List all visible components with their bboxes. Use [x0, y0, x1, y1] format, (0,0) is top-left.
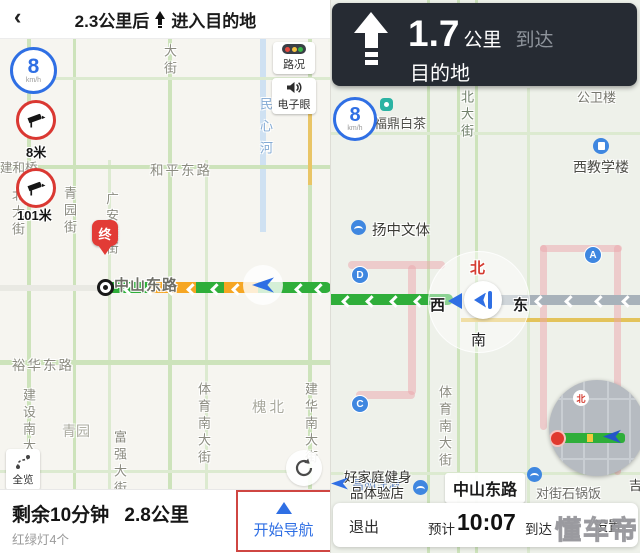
vehicle-glyph-arrow: [474, 293, 486, 308]
district-label: 青园: [62, 421, 90, 441]
metro-line: [540, 245, 547, 430]
station-letter: D: [356, 270, 363, 281]
current-road-pill: 中山东路: [445, 473, 525, 503]
maneuver-banner: 1.7 公里 到达 目的地: [332, 3, 637, 86]
camera-distance: 8米: [26, 142, 46, 161]
building-poi-icon: [593, 138, 609, 154]
poi-label: 福鼎白茶: [374, 113, 426, 132]
start-navigation-button[interactable]: 开始导航: [238, 493, 329, 549]
refresh-route-button[interactable]: [286, 450, 322, 486]
left-bottom-bar: 剩余10分钟 2.8公里 红绿灯4个 开始导航: [0, 489, 331, 553]
vehicle-marker: [464, 281, 502, 319]
compass-south: 南: [471, 329, 486, 350]
left-header: ‹ 2.3公里后 进入目的地: [0, 0, 331, 39]
remaining-distance: 2.8公里: [124, 505, 188, 526]
current-road-label: 中山东路: [114, 274, 178, 295]
right-navigation-panel[interactable]: 北 南 西 东 8 km/h 福鼎白茶 北大街 公卫楼 西教学楼 扬中文体 D …: [331, 0, 640, 553]
minimap-grid: [549, 398, 640, 400]
speed-value: 8: [28, 57, 40, 77]
cctv-camera-icon: [26, 180, 46, 196]
traffic-button-label: 路况: [283, 56, 305, 72]
eta-suffix: 到达: [525, 518, 552, 538]
yellow-dot-icon: [292, 47, 297, 52]
speed-camera-badge: [16, 100, 56, 140]
arrow-dash: [158, 26, 162, 28]
overview-route-icon: [15, 454, 31, 470]
traffic-light-icon: [282, 44, 306, 54]
road: [0, 285, 100, 291]
red-dot-icon: [285, 47, 290, 52]
green-dot-icon: [298, 47, 303, 52]
cctv-camera-icon: [26, 112, 46, 128]
poi-label: 西教学楼: [573, 157, 629, 177]
banner-distance-value: 1.7: [408, 13, 459, 55]
vehicle-heading-arrow: [448, 293, 462, 309]
speed-unit: km/h: [347, 125, 362, 132]
metro-station-icon: [413, 480, 428, 495]
left-route-preview-panel[interactable]: 大街 神 建和桥 北大街 青园街 广安大街 和平东路 民心河 中山东路 裕华东路…: [0, 0, 331, 553]
banner-destination-text: 目的地: [410, 57, 470, 86]
arrow-shaft: [158, 19, 162, 25]
station-letter: C: [356, 399, 363, 410]
street-label: 大街: [160, 44, 179, 78]
minimap-grid: [607, 380, 609, 476]
compass-west: 西: [430, 294, 445, 315]
metro-line: [540, 245, 622, 252]
speaker-icon: [286, 81, 303, 94]
header-distance-text: 2.3公里后: [75, 7, 150, 32]
minimap-grid: [549, 458, 640, 460]
street-label: 青园街: [60, 186, 79, 237]
overview-minimap[interactable]: 北: [549, 380, 640, 476]
vehicle-arrow-icon: [252, 276, 274, 295]
navigation-comparison-screenshot: 大街 神 建和桥 北大街 青园街 广安大街 和平东路 民心河 中山东路 裕华东路…: [0, 0, 640, 553]
eta-prefix: 预计: [428, 518, 455, 538]
metro-exit-a: A: [584, 246, 602, 264]
electronic-eye-label: 电子眼: [278, 96, 311, 112]
vehicle-glyph-bar: [488, 291, 492, 309]
street-label: 富强大街: [110, 430, 129, 498]
overview-button-label: 全览: [13, 472, 34, 487]
traffic-lights-count: 红绿灯4个: [12, 529, 69, 548]
speed-value: 8: [349, 106, 360, 125]
remaining-info: 剩余10分钟 2.8公里: [12, 500, 189, 527]
road: [331, 132, 640, 135]
start-nav-arrow-icon: [276, 502, 292, 514]
banner-distance-unit: 公里: [463, 25, 501, 52]
minimap-grid: [629, 380, 631, 476]
destination-pin: 终: [92, 220, 118, 246]
minimap-destination-dot: [549, 430, 566, 447]
icon-dot: [384, 102, 389, 107]
destination-pin-label: 终: [98, 224, 111, 243]
street-label: 北大街: [457, 90, 476, 141]
minimap-north-label: 北: [576, 392, 585, 405]
metro-exit-c: C: [351, 395, 369, 413]
poi-label: 扬中文体: [372, 219, 430, 240]
banner-arrive-text: 到达: [515, 25, 553, 52]
compass-north: 北: [470, 257, 485, 278]
poi-label: 对街石锅饭: [536, 483, 601, 502]
street-label: 和平东路: [150, 159, 212, 179]
district-label: 槐北: [252, 396, 287, 417]
speed-camera-badge: [16, 168, 56, 208]
minimap-north-badge: 北: [573, 390, 589, 406]
bullseye-dot: [103, 285, 108, 290]
straight-arrow-icon: [354, 12, 388, 65]
traffic-condition-button[interactable]: 路况: [273, 42, 315, 74]
route-start-bullseye: [97, 279, 114, 296]
vehicle-position-halo: [243, 265, 283, 305]
road: [73, 38, 76, 553]
street-label: 体育南大街: [194, 382, 213, 467]
metro-station-icon: [527, 467, 542, 482]
metro-station-icon: [351, 220, 366, 235]
minimap-slow-segment: [587, 434, 593, 442]
refresh-icon: [293, 457, 315, 479]
speed-unit: km/h: [26, 77, 41, 84]
speed-limit-badge: 8 km/h: [333, 97, 377, 141]
watermark: 懂车帝: [555, 510, 639, 547]
speed-limit-badge: 8 km/h: [10, 47, 57, 94]
compass-east: 东: [513, 294, 528, 315]
road: [0, 470, 290, 473]
remaining-time: 剩余10分钟: [12, 505, 109, 526]
arrow-shaft: [365, 33, 378, 48]
arrow-head: [354, 12, 388, 33]
straight-arrow-icon: [155, 11, 165, 28]
metro-line: [408, 265, 416, 395]
route-overview-button[interactable]: 全览: [6, 449, 40, 491]
arrow-head: [155, 11, 165, 19]
eta-time: 10:07: [457, 509, 516, 536]
poi-label: 吉: [629, 475, 640, 494]
banner-distance-row: 1.7 公里 到达: [408, 13, 553, 55]
arrow-dash: [365, 60, 378, 65]
destination-pin-tail: [98, 245, 112, 255]
minimap-grid: [561, 380, 563, 476]
street-label: 体育南大街: [435, 385, 454, 470]
header-action-text: 进入目的地: [171, 7, 256, 32]
start-nav-label: 开始导航: [253, 519, 313, 540]
exit-button[interactable]: 退出: [349, 516, 379, 537]
electronic-eye-button[interactable]: 电子眼: [272, 78, 316, 114]
street-label: 裕华东路: [12, 354, 74, 374]
station-letter: A: [589, 250, 596, 261]
road: [308, 105, 312, 185]
building-glyph: [598, 142, 605, 150]
back-button[interactable]: ‹: [14, 4, 21, 30]
poi-label: 品体验店: [350, 482, 404, 502]
arrow-dash: [365, 52, 378, 57]
tea-shop-icon: [380, 98, 393, 111]
poi-label: 公卫楼: [577, 87, 616, 106]
panel-divider: [330, 0, 331, 553]
metro-exit-d: D: [351, 266, 369, 284]
